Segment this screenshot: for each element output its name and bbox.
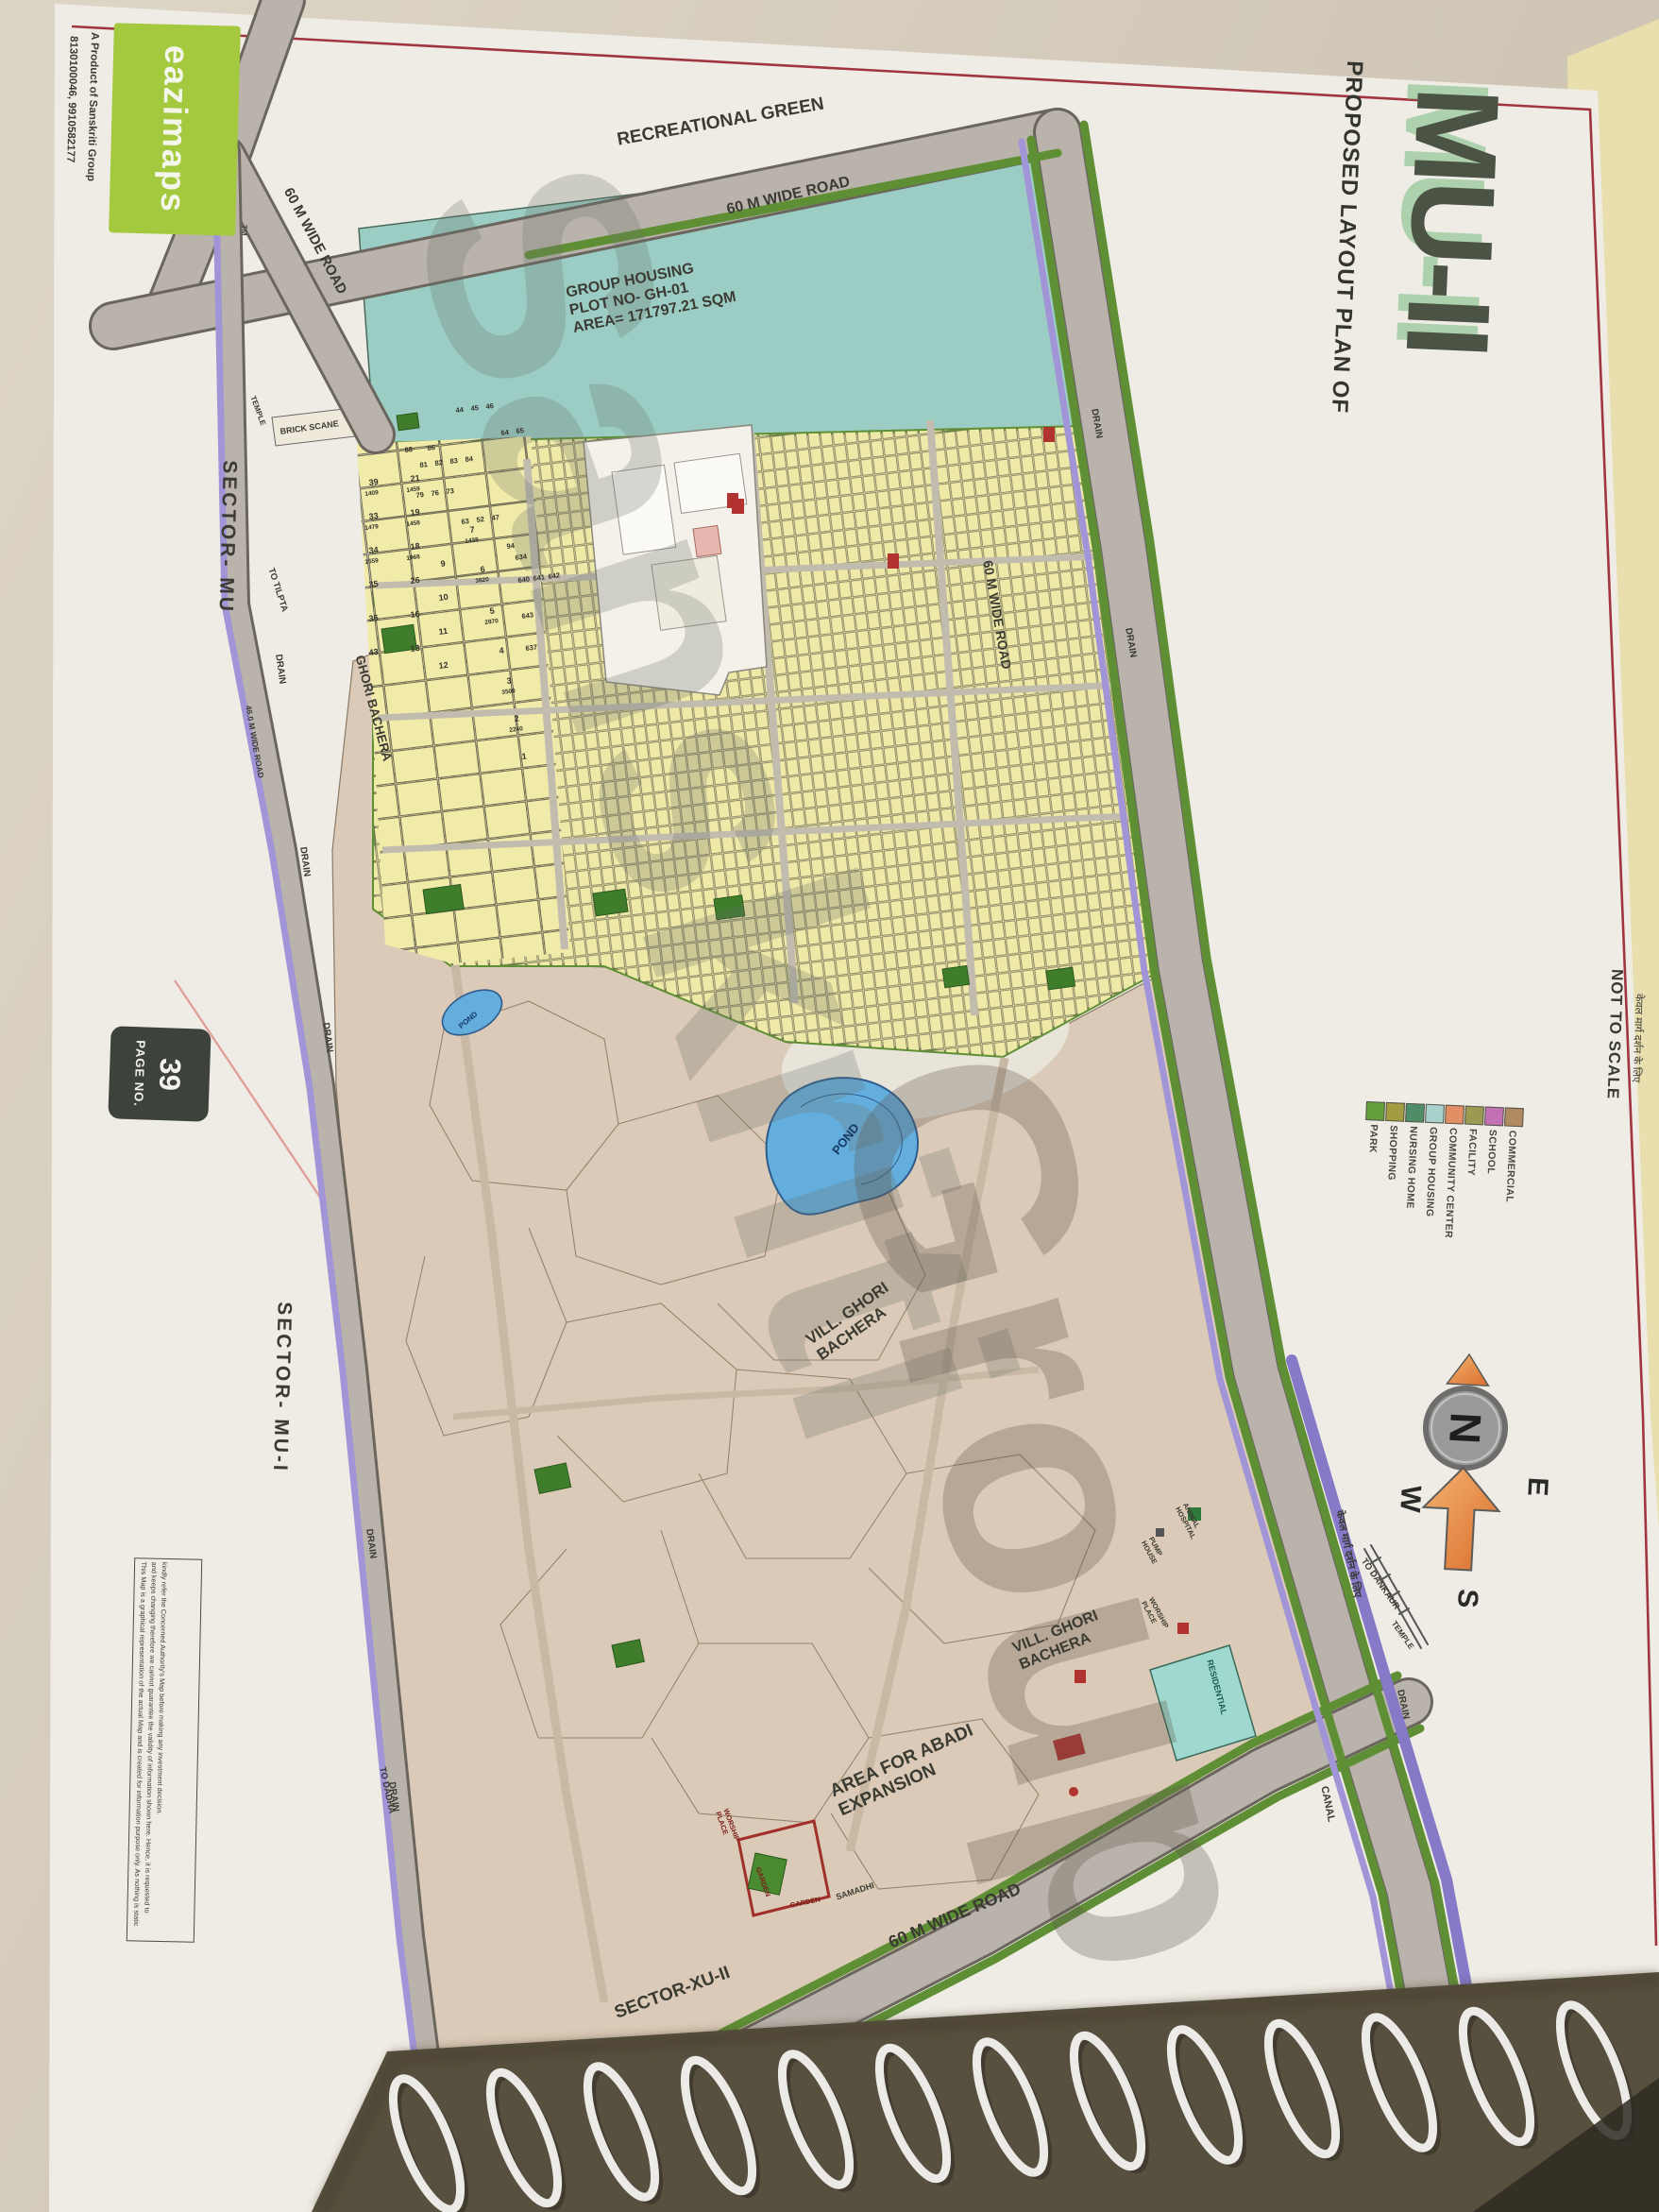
plot-number: 33 <box>368 511 379 521</box>
plot-number: 39 <box>368 477 379 487</box>
eazimaps-logo-text: eazimaps <box>153 44 197 213</box>
plot-number: 13 <box>410 643 420 654</box>
legend-swatch-group-housing <box>1425 1104 1445 1124</box>
plot-number: 12 <box>438 660 449 671</box>
plot-number: 637 <box>525 642 538 652</box>
plot-number: 7 <box>469 524 475 535</box>
plot-number: 18 <box>410 541 420 552</box>
plot-number: 73 <box>446 486 454 496</box>
legend-label: FACILITY <box>1465 1129 1479 1176</box>
legend-swatch-nursing-home <box>1405 1103 1425 1123</box>
plot-number: 5 <box>489 605 495 616</box>
legend-label: COMMERCIAL <box>1503 1131 1517 1203</box>
compass-s: S <box>1451 1588 1483 1608</box>
plot-number: 64 <box>500 428 509 437</box>
plot-number: 21 <box>410 473 420 484</box>
plot-number: 35 <box>368 579 379 589</box>
disclaimer-text: This Map is a graphical representation o… <box>130 1561 169 1929</box>
plot-number: 640 <box>517 574 531 584</box>
plot-number: 10 <box>438 592 449 603</box>
plot-number: 52 <box>476 515 484 524</box>
legend-label: GROUP HOUSING <box>1424 1127 1439 1217</box>
legend-swatch-shopping <box>1385 1102 1405 1122</box>
legend-label: SHOPPING <box>1385 1125 1399 1181</box>
plot-number: 4 <box>499 645 504 655</box>
plot-number: 82 <box>434 458 443 468</box>
photo-of-map-page: { "page": { "title_prefix": "PROPOSED LA… <box>0 0 1659 2212</box>
plot-number: 83 <box>449 456 458 466</box>
map-legend: COMMERCIALSCHOOLFACILITYCOMMUNITY CENTER… <box>1353 1101 1545 1402</box>
label-sector-mu: SECTOR- MU <box>213 460 241 614</box>
plot-number: 16 <box>410 609 420 620</box>
plot-number: 19 <box>410 507 420 518</box>
plot-number: 26 <box>410 575 420 586</box>
page-number-label: PAGE NO. <box>131 1040 147 1107</box>
page-number-value: 39 <box>152 1057 187 1091</box>
plot-number: 641 <box>533 572 546 582</box>
legend-swatch-park <box>1365 1101 1385 1121</box>
legend-label: NURSING HOME <box>1404 1126 1419 1209</box>
plot-number: 88 <box>404 445 413 454</box>
legend-swatch-commercial <box>1504 1107 1524 1127</box>
page-title: MU-II <box>1390 85 1513 357</box>
plot-number: 63 <box>461 517 469 526</box>
label-sector-mu-i: SECTOR- MU-I <box>267 1302 296 1473</box>
plot-number: 3 <box>506 675 512 686</box>
legend-label: COMMUNITY CENTER <box>1443 1128 1459 1238</box>
plot-number: 43 <box>368 647 379 657</box>
plot-number: 46 <box>485 401 494 411</box>
plot-number: 1 <box>521 751 527 761</box>
plot-number: 47 <box>491 513 499 522</box>
plot-number: 86 <box>427 443 435 452</box>
legend-swatch-school <box>1484 1106 1504 1126</box>
plot-number: 634 <box>515 552 528 561</box>
plot-number: 94 <box>506 541 515 551</box>
legend-swatch-community-center <box>1445 1105 1464 1125</box>
plot-number: 76 <box>431 488 439 498</box>
legend-label: PARK <box>1367 1124 1380 1153</box>
disclaimer-box: This Map is a graphical representation o… <box>127 1557 202 1942</box>
plot-number: 34 <box>368 545 379 555</box>
plot-number: 81 <box>419 460 428 469</box>
legend-label: SCHOOL <box>1485 1130 1498 1175</box>
plot-number: 36 <box>368 613 379 623</box>
plot-number: 45 <box>470 403 479 413</box>
plot-number: 643 <box>521 610 534 620</box>
plot-number: 2 <box>514 713 519 723</box>
compass-n: N <box>1440 1411 1491 1445</box>
page-number-badge: PAGE NO. 39 <box>108 1026 211 1122</box>
plot-number: 79 <box>415 490 424 500</box>
compass-w: W <box>1394 1485 1426 1514</box>
compass-e: E <box>1521 1476 1553 1497</box>
plot-number: 11 <box>438 626 449 637</box>
eazimaps-logo: eazimaps <box>109 23 241 235</box>
legend-swatch-facility <box>1464 1106 1484 1126</box>
plot-number: 65 <box>516 426 524 435</box>
plot-number: 84 <box>465 454 473 464</box>
trademark-mark: TM <box>240 225 248 236</box>
plot-number: 6 <box>480 564 485 574</box>
plot-number: 44 <box>455 405 464 415</box>
plot-number: 642 <box>548 570 561 580</box>
plot-number: 9 <box>440 558 446 569</box>
